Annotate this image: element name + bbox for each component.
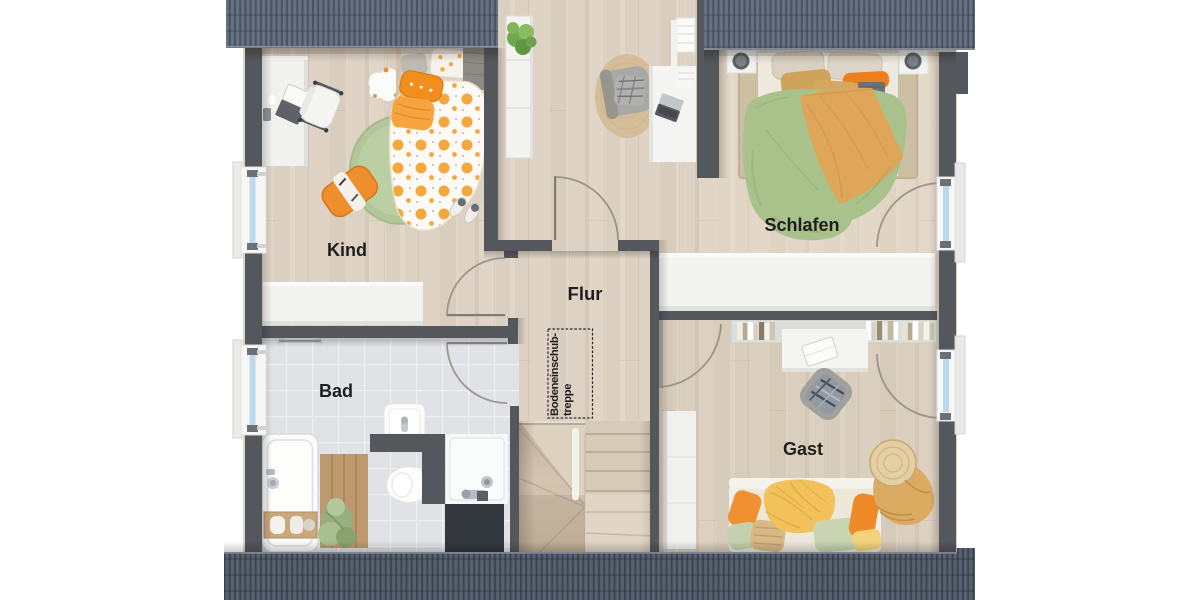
svg-text:Flur: Flur [568, 283, 603, 304]
svg-text:Schlafen: Schlafen [764, 215, 839, 235]
svg-text:Bodeneinschub-: Bodeneinschub- [549, 333, 561, 416]
svg-text:treppe: treppe [562, 384, 574, 416]
svg-text:Kind: Kind [327, 240, 367, 260]
svg-text:Bad: Bad [319, 381, 353, 401]
svg-text:Gast: Gast [783, 439, 823, 459]
